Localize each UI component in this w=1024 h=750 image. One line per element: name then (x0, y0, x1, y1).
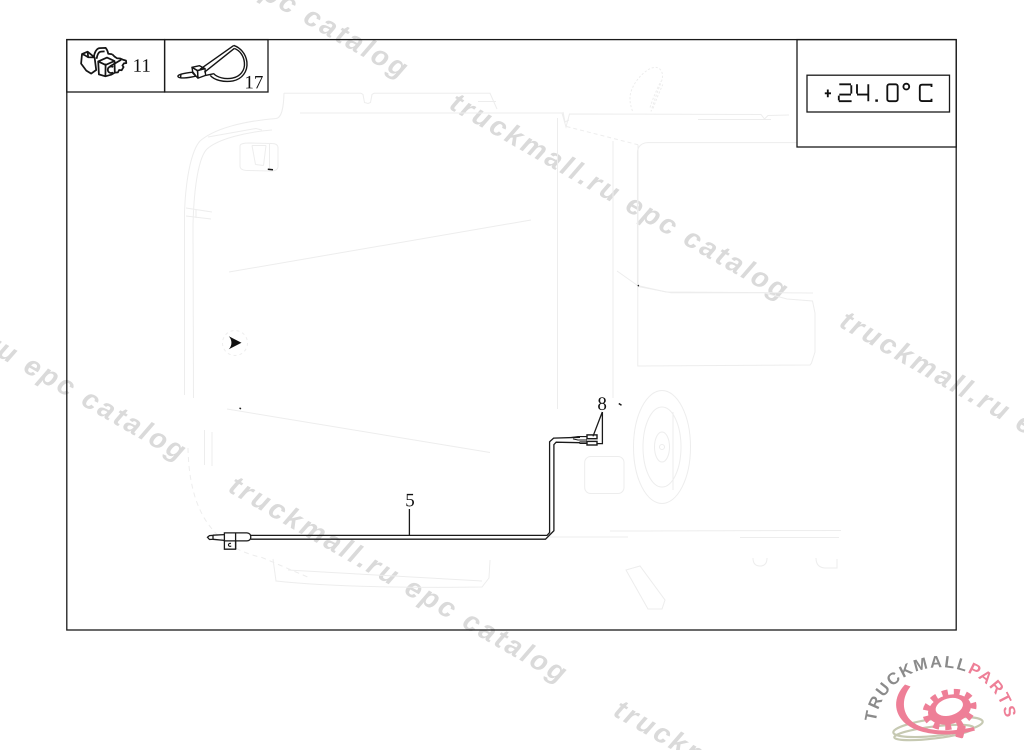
svg-text:8: 8 (597, 394, 607, 415)
svg-text:truckmall.ru epc catalog: truckmall.ru epc catalog (0, 247, 194, 467)
svg-text:11: 11 (133, 56, 151, 77)
svg-text:truckmall.ru epc catalog: truckmall.ru epc catalog (224, 469, 575, 689)
svg-text:truckmall.ru epc catalog: truckmall.ru epc catalog (835, 304, 1024, 524)
svg-text:17: 17 (244, 72, 263, 93)
svg-text:5: 5 (405, 490, 415, 511)
